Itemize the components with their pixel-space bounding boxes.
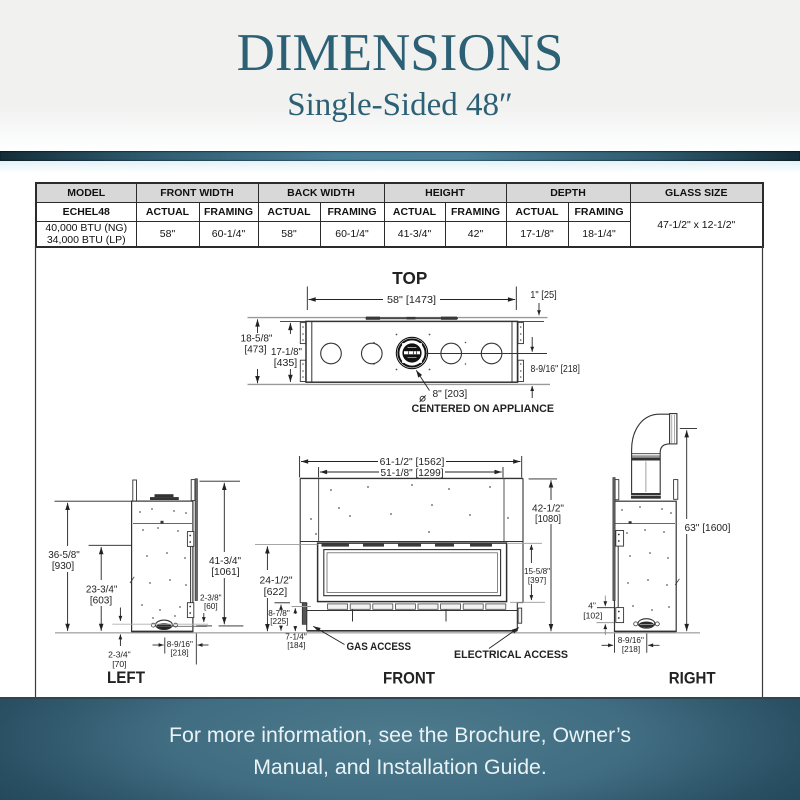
svg-text:[930]: [930] <box>52 561 74 572</box>
svg-text:[1061]: [1061] <box>211 567 240 578</box>
svg-text:58" [1473]: 58" [1473] <box>387 295 436 306</box>
svg-text:[102]: [102] <box>583 611 602 621</box>
svg-text:[435]: [435] <box>274 358 298 369</box>
svg-text:15-5/8": 15-5/8" <box>524 567 550 576</box>
svg-text:GAS ACCESS: GAS ACCESS <box>347 641 412 653</box>
svg-text:18-5/8": 18-5/8" <box>241 334 273 345</box>
svg-text:24-1/2": 24-1/2" <box>260 576 293 587</box>
svg-text:[60]: [60] <box>204 602 218 611</box>
svg-text:[218]: [218] <box>622 645 640 654</box>
svg-text:[622]: [622] <box>264 587 288 598</box>
svg-text:61-1/2" [1562]: 61-1/2" [1562] <box>380 457 445 468</box>
svg-text:TOP: TOP <box>392 268 427 288</box>
svg-text:17-1/8": 17-1/8" <box>271 347 302 358</box>
svg-text:CENTERED ON APPLIANCE: CENTERED ON APPLIANCE <box>412 403 555 415</box>
svg-text:LEFT: LEFT <box>107 669 145 687</box>
svg-text:8-9/16": 8-9/16" <box>618 636 644 645</box>
svg-text:[184]: [184] <box>287 641 305 650</box>
svg-text:[1080]: [1080] <box>535 514 561 525</box>
svg-text:63" [1600]: 63" [1600] <box>685 523 731 534</box>
svg-text:4": 4" <box>588 600 596 610</box>
svg-text:41-3/4": 41-3/4" <box>209 556 241 567</box>
svg-text:36-5/8": 36-5/8" <box>48 550 80 561</box>
svg-text:ELECTRICAL ACCESS: ELECTRICAL ACCESS <box>454 649 568 661</box>
svg-text:51-1/8" [1299]: 51-1/8" [1299] <box>381 468 444 479</box>
svg-text:8" [203]: 8" [203] <box>433 389 468 400</box>
svg-text:[473]: [473] <box>245 345 267 356</box>
svg-text:[225]: [225] <box>270 617 288 626</box>
svg-text:23-3/4": 23-3/4" <box>86 585 118 596</box>
svg-text:2-3/4": 2-3/4" <box>108 650 131 660</box>
svg-text:42-1/2": 42-1/2" <box>532 504 564 515</box>
svg-text:[218]: [218] <box>170 649 188 658</box>
svg-text:[70]: [70] <box>112 659 126 669</box>
svg-text:[397]: [397] <box>528 576 546 585</box>
svg-text:8-9/16": 8-9/16" <box>167 640 193 649</box>
svg-text:FRONT: FRONT <box>383 668 436 687</box>
svg-text:8-9/16" [218]: 8-9/16" [218] <box>531 364 580 375</box>
svg-text:RIGHT: RIGHT <box>669 669 716 687</box>
svg-text:[603]: [603] <box>90 596 112 607</box>
svg-text:1" [25]: 1" [25] <box>530 290 557 301</box>
